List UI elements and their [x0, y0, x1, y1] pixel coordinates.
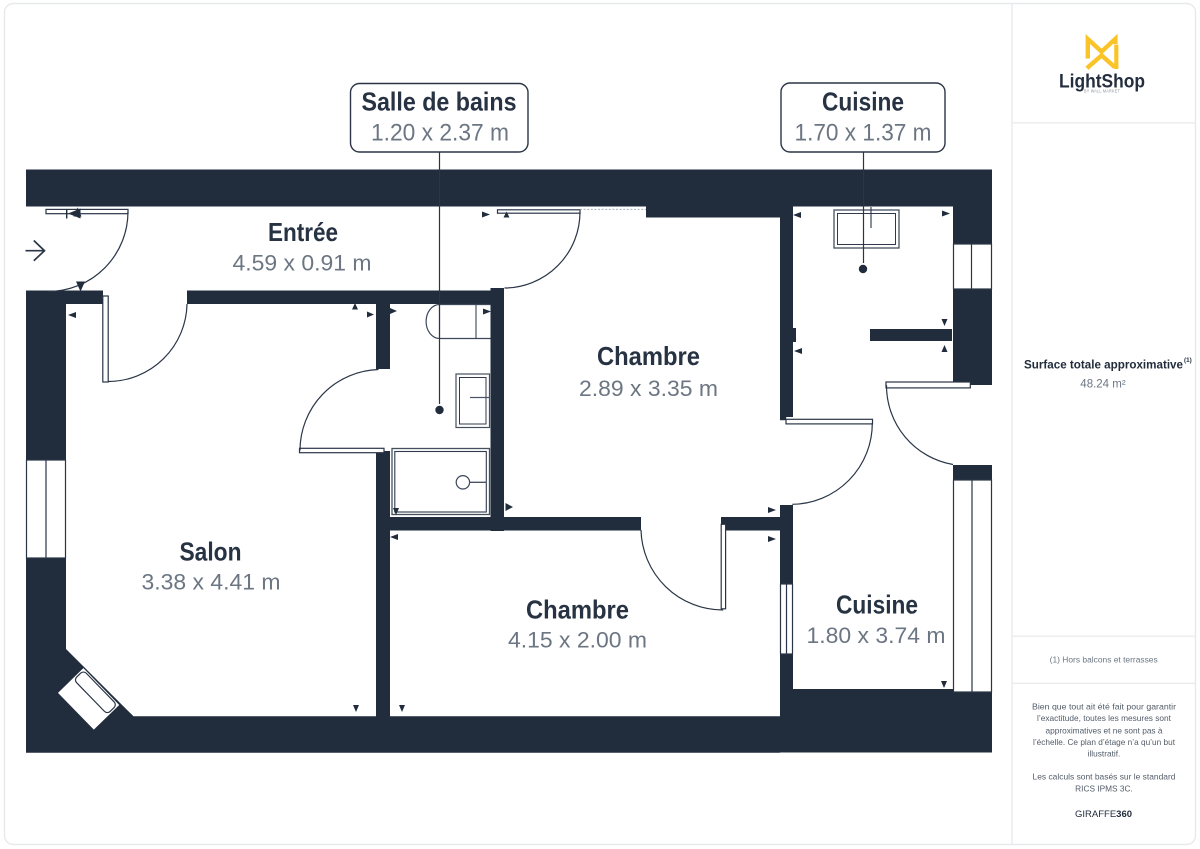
svg-text:l’échelle. Ce plan d’étage n’a: l’échelle. Ce plan d’étage n’a qu’un but	[1033, 737, 1176, 747]
svg-text:Bien que tout ait été fait pou: Bien que tout ait été fait pour garantir	[1032, 701, 1176, 711]
svg-text:Chambre: Chambre	[526, 595, 629, 625]
svg-text:Salon: Salon	[180, 537, 242, 567]
svg-text:Les calculs sont basés sur le: Les calculs sont basés sur le standard	[1033, 771, 1176, 781]
svg-text:1.20 x 2.37 m: 1.20 x 2.37 m	[371, 120, 509, 147]
svg-text:Surface totale approximative: Surface totale approximative	[1024, 358, 1183, 372]
svg-text:GIRAFFE360: GIRAFFE360	[1075, 809, 1132, 820]
svg-text:2.89 x 3.35 m: 2.89 x 3.35 m	[579, 376, 718, 401]
svg-text:l’exactitude, toutes les mesur: l’exactitude, toutes les mesures sont	[1037, 713, 1172, 723]
svg-text:(1): (1)	[1184, 357, 1192, 364]
svg-text:4.15 x 2.00 m: 4.15 x 2.00 m	[508, 628, 647, 653]
svg-text:Chambre: Chambre	[597, 341, 700, 371]
svg-text:approximatives et ne sont pas: approximatives et ne sont pas à	[1046, 725, 1163, 735]
svg-text:4.59 x 0.91 m: 4.59 x 0.91 m	[233, 250, 372, 275]
svg-text:Cuisine: Cuisine	[836, 590, 918, 620]
svg-text:RICS IPMS 3C.: RICS IPMS 3C.	[1075, 783, 1133, 793]
svg-text:Salle de bains: Salle de bains	[362, 87, 517, 117]
svg-text:1.70 x 1.37 m: 1.70 x 1.37 m	[795, 120, 932, 147]
svg-text:Cuisine: Cuisine	[822, 87, 904, 117]
svg-text:(1) Hors balcons et terrasses: (1) Hors balcons et terrasses	[1050, 656, 1158, 665]
svg-text:Entrée: Entrée	[268, 217, 338, 247]
svg-text:illustratif.: illustratif.	[1088, 748, 1121, 758]
svg-text:3.38 x 4.41 m: 3.38 x 4.41 m	[142, 570, 281, 595]
svg-text:BY WALL MARKET: BY WALL MARKET	[1084, 89, 1120, 94]
svg-text:1.80 x 3.74 m: 1.80 x 3.74 m	[807, 623, 946, 648]
svg-text:48.24 m²: 48.24 m²	[1080, 379, 1126, 391]
